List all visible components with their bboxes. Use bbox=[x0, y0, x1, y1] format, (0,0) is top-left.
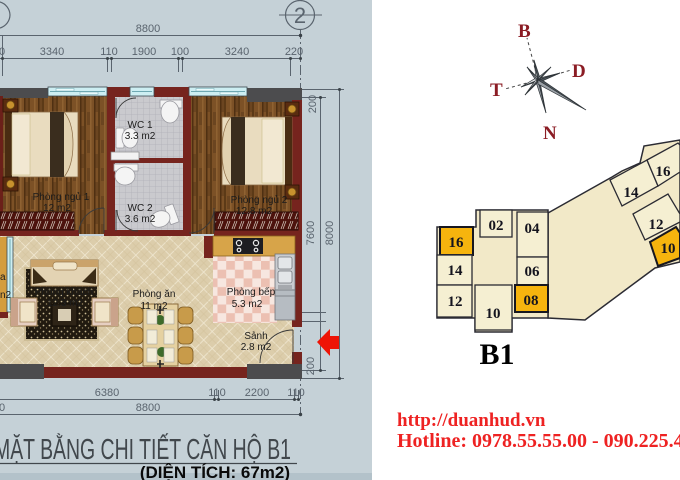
svg-text:3.3 m2: 3.3 m2 bbox=[125, 131, 156, 142]
svg-text:Sảnh: Sảnh bbox=[244, 331, 267, 342]
svg-text:16: 16 bbox=[656, 164, 672, 180]
svg-text:T: T bbox=[490, 80, 503, 101]
svg-text:http://duanhud.vn: http://duanhud.vn bbox=[397, 410, 546, 431]
svg-text:12: 12 bbox=[649, 217, 664, 233]
svg-text:110: 110 bbox=[287, 387, 305, 399]
svg-text:110: 110 bbox=[100, 46, 118, 58]
svg-text:2: 2 bbox=[294, 3, 306, 28]
svg-text:06: 06 bbox=[525, 264, 541, 280]
svg-text:Phòng ngủ 2: Phòng ngủ 2 bbox=[231, 194, 288, 206]
svg-text:Phòng ăn: Phòng ăn bbox=[133, 289, 176, 300]
svg-text:8800: 8800 bbox=[136, 23, 160, 35]
svg-text:0: 0 bbox=[0, 402, 5, 414]
svg-text:200: 200 bbox=[307, 95, 319, 113]
svg-text:14: 14 bbox=[448, 263, 464, 279]
svg-text:B1: B1 bbox=[479, 338, 514, 371]
svg-text:Hotline: 0978.55.55.00 - 090.2: Hotline: 0978.55.55.00 - 090.225.4040 bbox=[397, 430, 680, 452]
svg-text:Phòng bếp: Phòng bếp bbox=[227, 286, 276, 298]
svg-text:8800: 8800 bbox=[136, 402, 160, 414]
svg-text:WC 2: WC 2 bbox=[128, 203, 153, 214]
svg-text:200: 200 bbox=[305, 357, 317, 375]
svg-text:3340: 3340 bbox=[40, 46, 64, 58]
svg-text:08: 08 bbox=[524, 293, 539, 309]
svg-text:B: B bbox=[518, 21, 531, 42]
svg-text:10: 10 bbox=[661, 241, 676, 257]
svg-text:2200: 2200 bbox=[245, 387, 269, 399]
svg-text:11 m2: 11 m2 bbox=[140, 301, 167, 312]
svg-text:Phòng khách: Phòng khách bbox=[35, 287, 93, 298]
svg-text:MẶT BẰNG CHI TIẾT CĂN HỘ B1: MẶT BẰNG CHI TIẾT CĂN HỘ B1 bbox=[0, 432, 291, 466]
svg-text:D: D bbox=[572, 61, 586, 82]
svg-text:0: 0 bbox=[0, 46, 5, 58]
svg-text:04: 04 bbox=[525, 221, 541, 237]
svg-text:7600: 7600 bbox=[305, 221, 317, 245]
svg-text:3240: 3240 bbox=[225, 46, 249, 58]
svg-text:WC 1: WC 1 bbox=[128, 120, 153, 131]
svg-text:3.6 m2: 3.6 m2 bbox=[125, 214, 156, 225]
svg-text:16: 16 bbox=[449, 235, 465, 251]
svg-text:6380: 6380 bbox=[95, 387, 119, 399]
svg-text:02: 02 bbox=[489, 218, 504, 234]
svg-text:14: 14 bbox=[624, 185, 640, 201]
svg-text:1900: 1900 bbox=[132, 46, 156, 58]
svg-text:12.8 m2: 12.8 m2 bbox=[236, 206, 273, 217]
svg-text:8000: 8000 bbox=[324, 221, 336, 245]
svg-text:N: N bbox=[543, 123, 557, 144]
svg-text:5.3 m2: 5.3 m2 bbox=[232, 299, 263, 310]
svg-text:n2: n2 bbox=[0, 290, 12, 301]
svg-text:100: 100 bbox=[171, 46, 189, 58]
svg-text:(DIỆN TÍCH: 67m2): (DIỆN TÍCH: 67m2) bbox=[140, 463, 290, 480]
svg-text:a: a bbox=[0, 272, 6, 283]
svg-text:12 m2: 12 m2 bbox=[43, 203, 71, 214]
svg-text:12: 12 bbox=[448, 294, 463, 310]
svg-text:220: 220 bbox=[285, 46, 303, 58]
svg-text:10: 10 bbox=[486, 306, 501, 322]
svg-text:110: 110 bbox=[208, 387, 226, 399]
svg-text:12.3 m2: 12.3 m2 bbox=[47, 298, 84, 309]
svg-text:Phòng ngủ 1: Phòng ngủ 1 bbox=[33, 191, 90, 203]
svg-text:2.8 m2: 2.8 m2 bbox=[241, 342, 272, 353]
